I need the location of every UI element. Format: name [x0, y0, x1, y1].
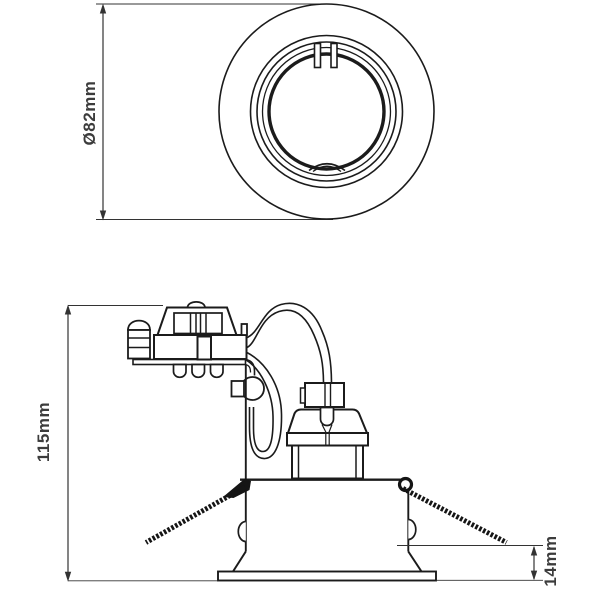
- arrow-down-icon: [65, 572, 71, 582]
- terminal-pin: [192, 365, 205, 378]
- trim-ring-circles: [219, 4, 434, 219]
- bracket-pin: [232, 381, 245, 397]
- arrow-up-icon: [531, 546, 537, 556]
- arrow-up-icon: [100, 4, 106, 14]
- torsion-springs: [146, 479, 507, 543]
- terminal-pin: [211, 365, 224, 378]
- bracket-tab: [242, 324, 248, 335]
- diagram-canvas: Ø82mm 115mm 14mm: [0, 0, 600, 600]
- can-right-dimple: [408, 520, 416, 540]
- trim-flange: [218, 572, 436, 581]
- wire-connector: [128, 321, 150, 359]
- holder-plug: [321, 408, 334, 426]
- bracket-plate: [133, 360, 246, 365]
- can-left-dimple: [238, 522, 246, 542]
- holder-band: [287, 433, 368, 446]
- terminal-slot: [198, 337, 212, 360]
- trim-height-dimension-label: 14mm: [540, 521, 562, 600]
- lamp: [292, 446, 363, 479]
- terminal-pin: [174, 365, 187, 378]
- height-dimension-label: 115mm: [33, 392, 55, 472]
- top-view: [96, 4, 434, 221]
- terminal-block: [154, 302, 247, 360]
- arrow-up-icon: [65, 305, 71, 315]
- terminal-dome: [188, 302, 206, 308]
- side-view: [65, 302, 543, 582]
- arrow-down-icon: [100, 211, 106, 221]
- dimension-diameter-lines: [96, 4, 333, 221]
- diameter-dimension-label: Ø82mm: [79, 73, 101, 153]
- lamp-holder: [287, 383, 368, 446]
- housing-can: [218, 480, 436, 581]
- right-spring-arm: [403, 489, 507, 543]
- arrow-down-icon: [531, 571, 537, 581]
